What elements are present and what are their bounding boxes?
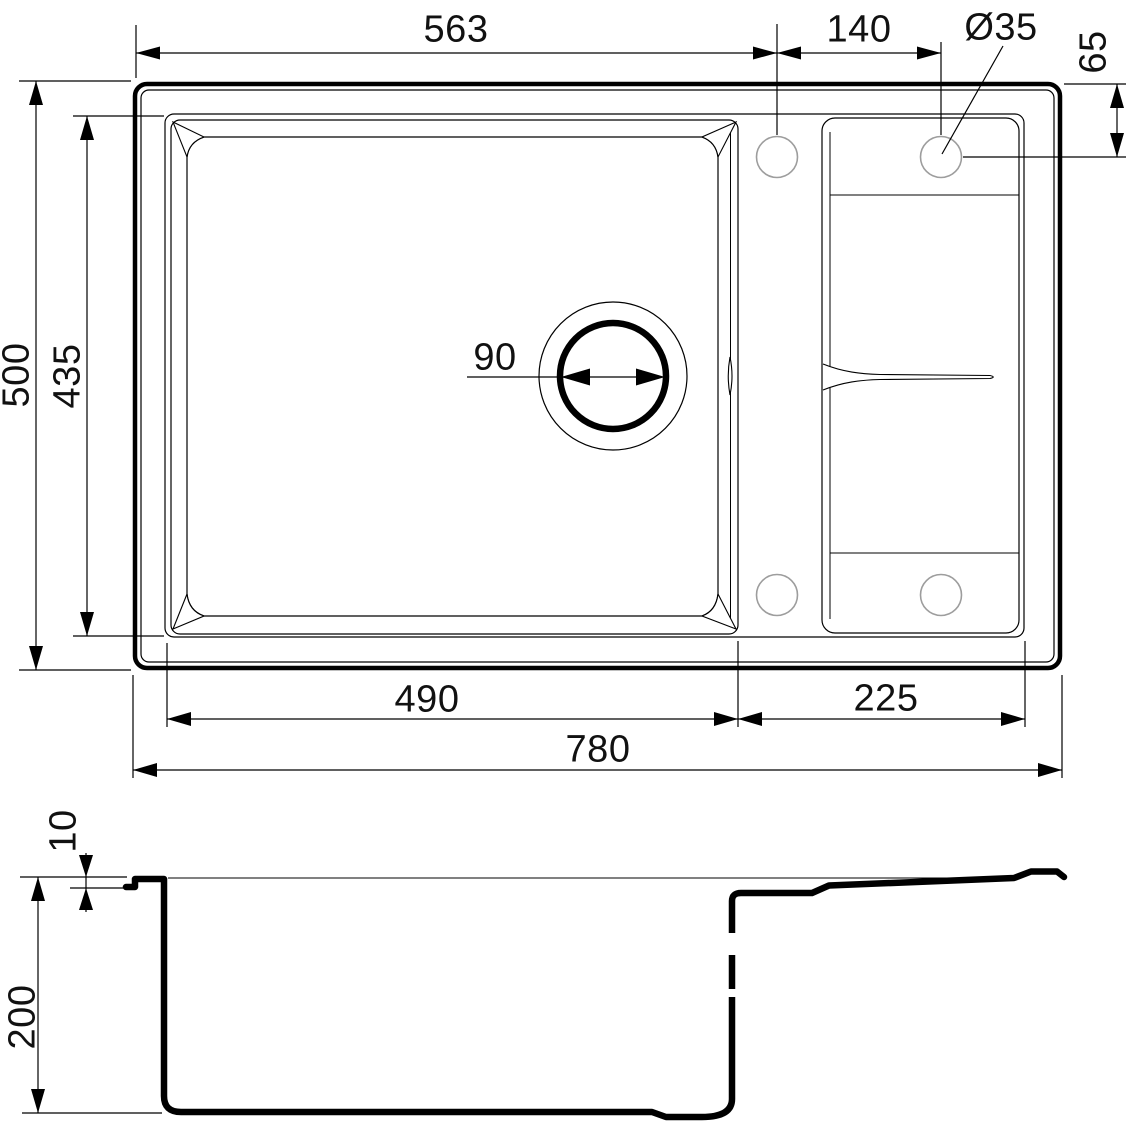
section-overflow-gap (727, 933, 737, 955)
arrow-mid-right (714, 712, 738, 726)
dim-label-65: 65 (1072, 30, 1114, 73)
sink-technical-drawing: 563 140 Ø35 65 500 435 (0, 0, 1127, 1133)
dim-label-10: 10 (42, 809, 84, 852)
dimension-435: 435 (46, 116, 164, 636)
bowl-corner-chamfer-top-left (173, 122, 204, 157)
dimension-90: 90 (467, 336, 665, 385)
dim-label-200: 200 (1, 985, 43, 1050)
dimension-780: 780 (133, 675, 1062, 778)
dim-label-500: 500 (0, 343, 37, 408)
overflow-slot (728, 357, 732, 395)
arrow-left (561, 369, 590, 386)
dim-label-90: 90 (473, 336, 516, 378)
dim-label-780: 780 (566, 728, 631, 770)
tap-hole-top-right (921, 137, 962, 178)
arrow-mid-left (738, 712, 762, 726)
dim-label-490: 490 (395, 678, 460, 720)
arrow-up (79, 888, 93, 910)
section-view (126, 872, 1064, 1118)
dimension-200: 200 (1, 877, 162, 1113)
technical-drawing-page: 563 140 Ø35 65 500 435 (0, 0, 1127, 1133)
dim-label-140: 140 (827, 8, 892, 50)
top-view (135, 84, 1060, 668)
arrow-up (31, 877, 45, 901)
dim-label-diameter-35: Ø35 (964, 6, 1037, 48)
tap-hole-bottom-right (921, 575, 962, 616)
arrow-down (29, 646, 43, 670)
arrow-left (136, 47, 160, 60)
arrow-left (777, 47, 801, 60)
bowl-corner-chamfer-bottom-left (173, 594, 204, 629)
drainboard-groove (823, 364, 993, 390)
arrow-right (1001, 712, 1025, 726)
section-overflow-gap-small (727, 989, 737, 997)
arrow-up (80, 116, 94, 140)
arrow-down (80, 612, 94, 636)
dim-label-435: 435 (46, 344, 88, 409)
dimension-65: 65 (963, 30, 1126, 157)
arrow-up (1110, 84, 1124, 108)
dim-label-225: 225 (854, 677, 919, 719)
arrow-right (1038, 763, 1062, 777)
dim-label-563: 563 (424, 8, 489, 50)
dimension-tap-diameter: Ø35 (942, 6, 1038, 154)
arrow-left (133, 763, 157, 777)
arrow-right (636, 369, 665, 386)
arrow-right (753, 47, 777, 60)
arrow-down (79, 855, 93, 877)
arrow-left (167, 712, 191, 726)
tap-hole-bottom-left (757, 575, 798, 616)
arrow-down (1110, 133, 1124, 157)
arrow-down (31, 1089, 45, 1113)
dimension-140: 140 (777, 8, 941, 135)
dimension-490-225: 490 225 (167, 641, 1025, 727)
arrow-right (917, 47, 941, 60)
dimension-563: 563 (136, 8, 777, 135)
tap-hole-top-left (757, 137, 798, 178)
arrow-up (29, 81, 43, 105)
section-profile (126, 872, 1064, 1118)
